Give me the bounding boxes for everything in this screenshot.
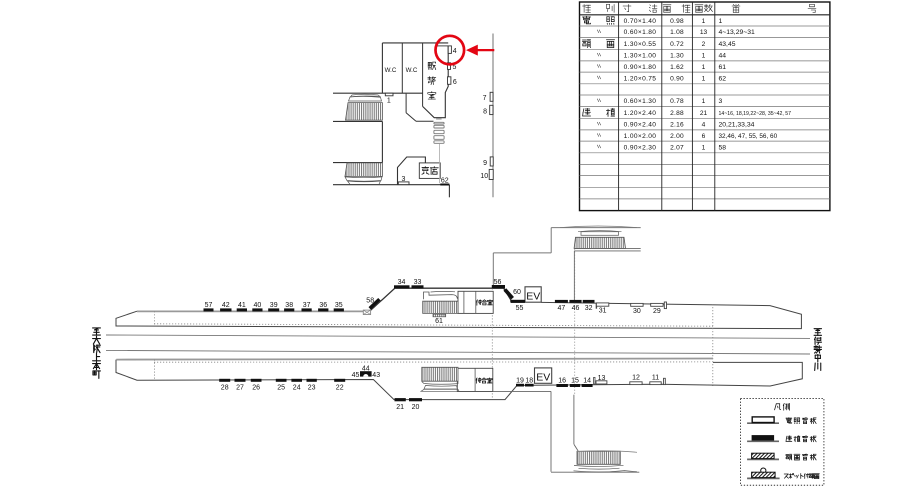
svg-text:0.60×1.80: 0.60×1.80 <box>624 29 657 36</box>
svg-text:21: 21 <box>396 404 404 411</box>
svg-text:31: 31 <box>599 307 607 314</box>
svg-text:38: 38 <box>285 302 293 309</box>
svg-text:22: 22 <box>336 385 344 392</box>
svg-text:1.00×2.00: 1.00×2.00 <box>624 133 657 140</box>
svg-text:8: 8 <box>483 108 487 115</box>
svg-text:55: 55 <box>516 305 524 312</box>
svg-text:0.90×1.80: 0.90×1.80 <box>624 64 657 71</box>
svg-text:19: 19 <box>516 377 524 384</box>
svg-text:11: 11 <box>652 374 659 381</box>
svg-text:2: 2 <box>702 41 706 48</box>
svg-text:40: 40 <box>254 302 262 309</box>
svg-text:61: 61 <box>719 64 727 71</box>
svg-text:34: 34 <box>398 279 406 286</box>
svg-text:24: 24 <box>293 385 301 392</box>
svg-text:7: 7 <box>483 95 487 102</box>
svg-text:1: 1 <box>702 144 706 151</box>
svg-text:56: 56 <box>494 279 502 286</box>
svg-text:21: 21 <box>700 110 708 117</box>
svg-text:42: 42 <box>222 302 230 309</box>
svg-text:60: 60 <box>513 289 521 296</box>
svg-text:6: 6 <box>453 79 457 86</box>
svg-text:1: 1 <box>702 53 706 60</box>
svg-text:2.00: 2.00 <box>670 133 684 140</box>
svg-text:1.20×0.75: 1.20×0.75 <box>624 75 657 82</box>
svg-text:0.60×1.30: 0.60×1.30 <box>624 98 657 105</box>
svg-text:58: 58 <box>719 144 727 151</box>
svg-text:1: 1 <box>702 18 706 25</box>
svg-text:16: 16 <box>558 378 566 385</box>
svg-text:1: 1 <box>387 97 391 104</box>
svg-text:0.78: 0.78 <box>670 98 684 105</box>
svg-text:1: 1 <box>702 64 706 71</box>
svg-text:46: 46 <box>572 305 580 312</box>
svg-text:10: 10 <box>480 173 488 180</box>
svg-text:14: 14 <box>583 378 591 385</box>
svg-text:41: 41 <box>238 302 246 309</box>
svg-text:18: 18 <box>525 377 533 384</box>
svg-text:2.88: 2.88 <box>670 110 684 117</box>
svg-text:15: 15 <box>571 378 579 385</box>
svg-text:43,45: 43,45 <box>719 41 736 48</box>
svg-text:57: 57 <box>205 302 213 309</box>
svg-text:9: 9 <box>483 160 487 167</box>
svg-text:1: 1 <box>702 75 706 82</box>
svg-text:33: 33 <box>414 279 422 286</box>
svg-text:W.C: W.C <box>385 67 397 74</box>
svg-text:13: 13 <box>598 375 606 382</box>
svg-text:1.30×0.55: 1.30×0.55 <box>624 41 657 48</box>
svg-text:58: 58 <box>366 298 374 305</box>
svg-text:43: 43 <box>372 372 380 379</box>
svg-text:4~13,29~31: 4~13,29~31 <box>719 29 756 36</box>
svg-text:29: 29 <box>653 308 661 315</box>
svg-text:2.07: 2.07 <box>670 144 684 151</box>
svg-text:20: 20 <box>412 404 420 411</box>
svg-text:23: 23 <box>308 385 316 392</box>
svg-text:37: 37 <box>303 302 311 309</box>
svg-text:0.90: 0.90 <box>670 75 684 82</box>
svg-text:39: 39 <box>270 302 278 309</box>
svg-text:27: 27 <box>236 385 244 392</box>
svg-text:0.90×2.40: 0.90×2.40 <box>624 122 657 129</box>
svg-text:32: 32 <box>585 305 593 312</box>
svg-text:1.62: 1.62 <box>670 64 684 71</box>
svg-text:W.C: W.C <box>406 67 418 74</box>
svg-text:13: 13 <box>700 29 708 36</box>
svg-text:32,46, 47, 55, 56, 60: 32,46, 47, 55, 56, 60 <box>719 133 778 140</box>
svg-text:EV: EV <box>526 290 540 302</box>
svg-text:45: 45 <box>352 372 360 379</box>
svg-text:36: 36 <box>319 302 327 309</box>
svg-text:61: 61 <box>435 318 443 325</box>
svg-text:0.98: 0.98 <box>670 18 684 25</box>
svg-text:25: 25 <box>277 385 285 392</box>
svg-text:1.08: 1.08 <box>670 29 684 36</box>
svg-text:0.90×2.30: 0.90×2.30 <box>624 144 657 151</box>
svg-text:28: 28 <box>221 385 229 392</box>
svg-text:20,21,33,34: 20,21,33,34 <box>719 122 755 129</box>
svg-text:1.30: 1.30 <box>670 53 684 60</box>
svg-text:6: 6 <box>702 133 706 140</box>
svg-text:3: 3 <box>719 98 723 105</box>
svg-text:35: 35 <box>335 302 343 309</box>
svg-text:44: 44 <box>719 53 727 60</box>
svg-text:1.30×1.00: 1.30×1.00 <box>624 53 657 60</box>
svg-text:4: 4 <box>453 48 457 55</box>
svg-text:0.72: 0.72 <box>670 41 684 48</box>
svg-text:62: 62 <box>719 75 727 82</box>
svg-text:12: 12 <box>632 374 640 381</box>
svg-text:62: 62 <box>441 177 449 184</box>
svg-text:1: 1 <box>719 18 723 25</box>
svg-text:EV: EV <box>536 371 550 383</box>
svg-text:0.70×1.40: 0.70×1.40 <box>624 18 657 25</box>
svg-text:47: 47 <box>558 305 566 312</box>
svg-text:3: 3 <box>402 176 406 183</box>
svg-text:2.16: 2.16 <box>670 122 684 129</box>
svg-text:1: 1 <box>702 98 706 105</box>
svg-text:4: 4 <box>702 122 706 129</box>
svg-text:1.20×2.40: 1.20×2.40 <box>624 110 657 117</box>
svg-text:30: 30 <box>633 308 641 315</box>
svg-text:14~16, 18,19,22~28, 35~42, 57: 14~16, 18,19,22~28, 35~42, 57 <box>719 111 792 117</box>
svg-text:26: 26 <box>252 385 260 392</box>
